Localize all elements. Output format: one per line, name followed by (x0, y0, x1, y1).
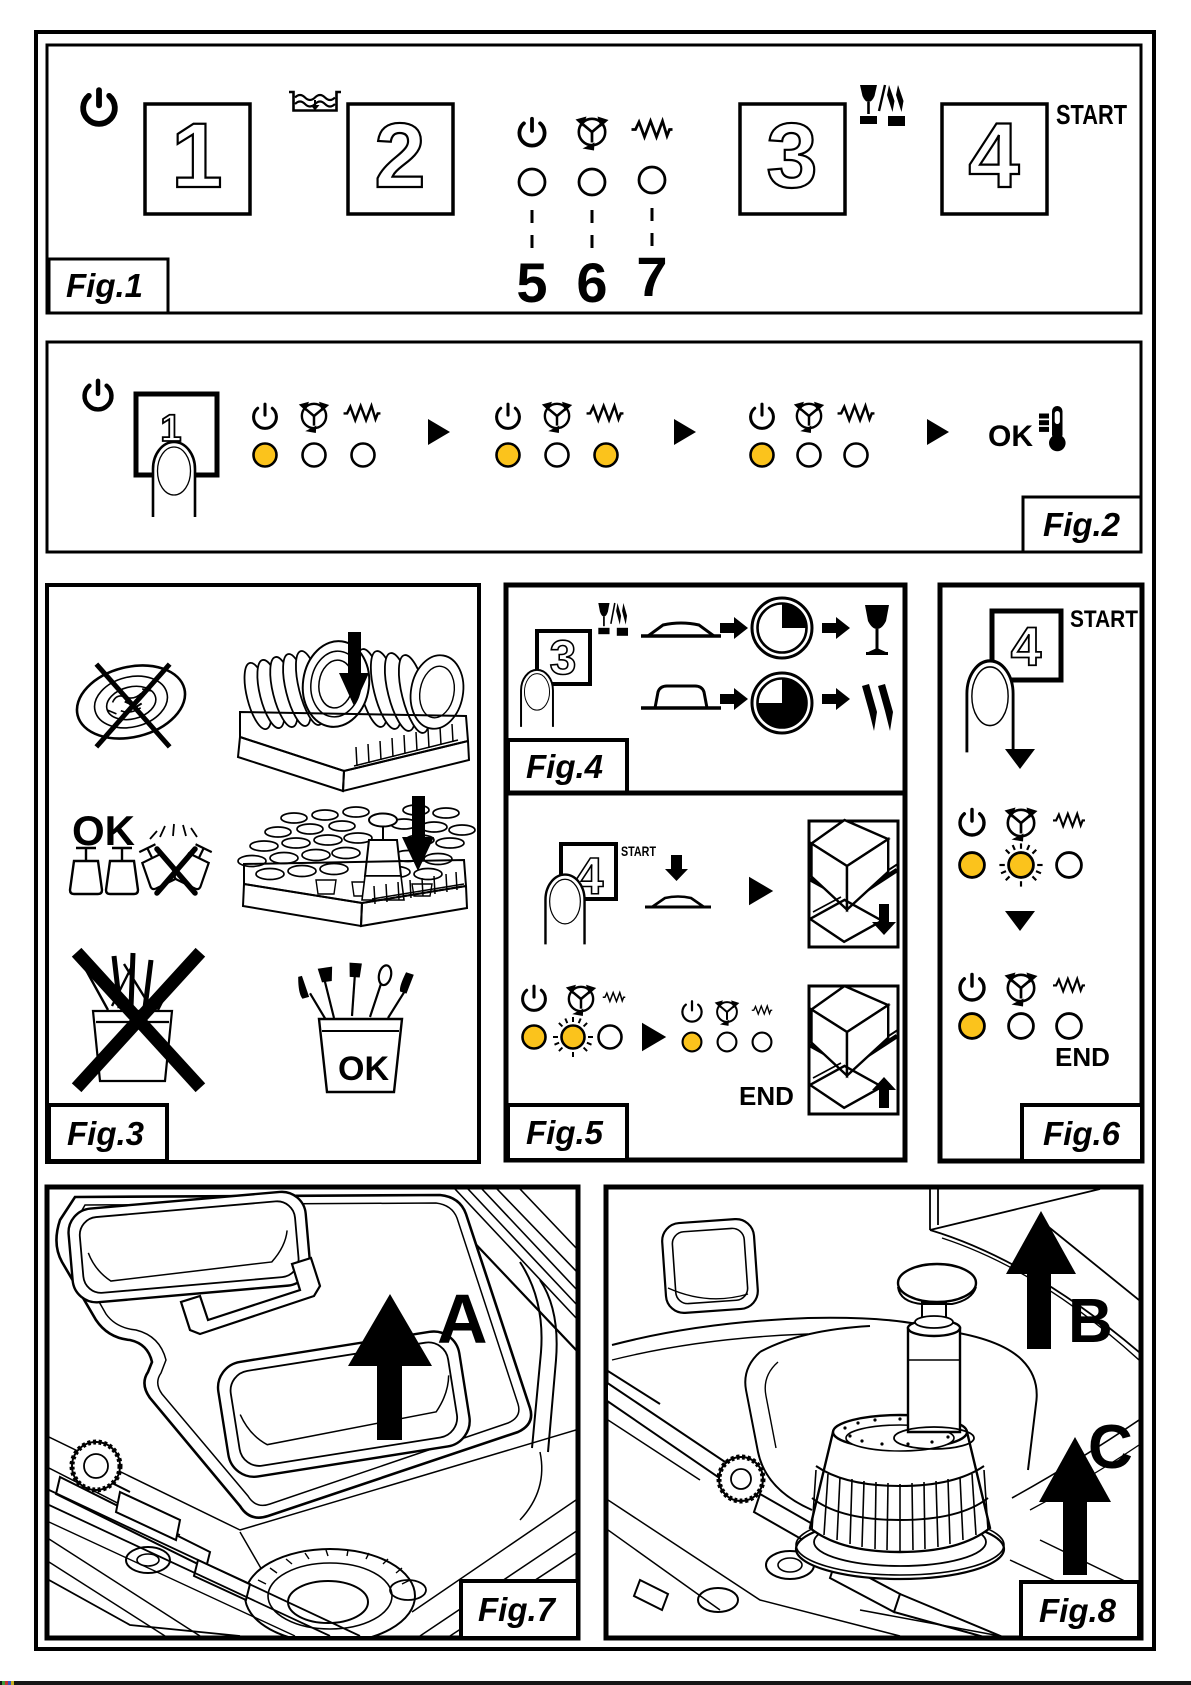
svg-text:Fig.6: Fig.6 (1043, 1115, 1121, 1152)
svg-text:Fig.4: Fig.4 (526, 748, 603, 785)
svg-text:Fig.3: Fig.3 (67, 1115, 144, 1152)
svg-text:7: 7 (636, 245, 667, 308)
svg-text:2: 2 (374, 105, 425, 207)
svg-text:OK: OK (988, 420, 1033, 453)
svg-text:END: END (739, 1081, 794, 1111)
svg-text:START: START (621, 843, 656, 859)
svg-text:3: 3 (550, 632, 577, 685)
svg-text:START: START (1070, 606, 1138, 633)
svg-text:6: 6 (576, 251, 607, 314)
svg-text:Fig.1: Fig.1 (66, 267, 143, 304)
svg-text:OK: OK (338, 1050, 389, 1088)
svg-text:Fig.2: Fig.2 (1043, 506, 1121, 543)
svg-text:4: 4 (1011, 615, 1042, 677)
svg-text:5: 5 (516, 251, 547, 314)
svg-text:A: A (437, 1280, 488, 1358)
svg-text:B: B (1068, 1287, 1113, 1356)
svg-text:END: END (1055, 1042, 1110, 1072)
svg-text:C: C (1088, 1413, 1133, 1482)
svg-text:Fig.5: Fig.5 (526, 1114, 604, 1151)
svg-text:Fig.8: Fig.8 (1039, 1592, 1117, 1629)
svg-text:Fig.7: Fig.7 (478, 1591, 557, 1628)
svg-text:4: 4 (968, 105, 1019, 207)
svg-text:3: 3 (766, 105, 817, 207)
svg-text:START: START (1056, 99, 1127, 130)
svg-text:1: 1 (171, 105, 222, 207)
